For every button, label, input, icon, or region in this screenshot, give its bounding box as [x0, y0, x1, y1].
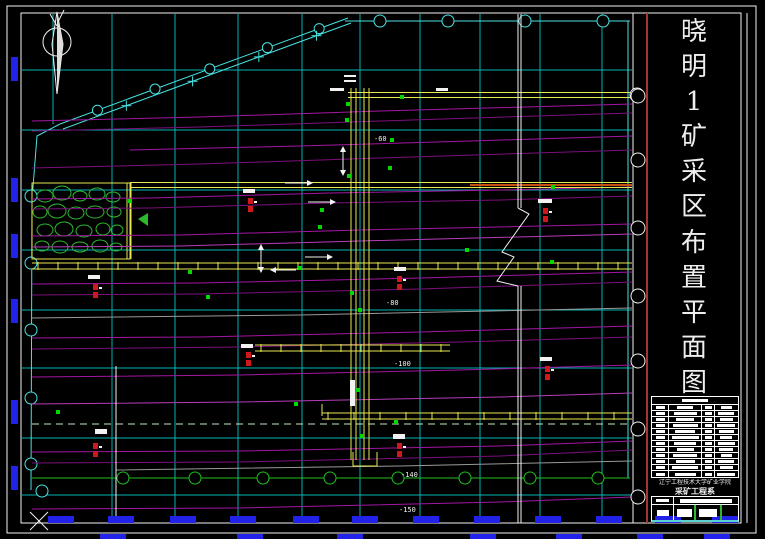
label-blob: [243, 189, 255, 193]
legend-cell: [715, 435, 737, 440]
boundary-marker-circle: [631, 89, 645, 103]
dimension-arrow: [270, 267, 276, 273]
goaf-rubble: [111, 225, 123, 235]
legend-cell: [715, 405, 737, 410]
coordinate-label: [11, 299, 18, 323]
contour-line: [32, 187, 632, 199]
boundary-marker-circle: [631, 354, 645, 368]
coordinate-label: [11, 400, 18, 424]
borehole-marker: [246, 360, 251, 366]
legend-cell: [702, 447, 715, 452]
coordinate-label: [704, 534, 730, 539]
signature-cell: [652, 505, 674, 520]
goaf-outline: [32, 183, 130, 259]
dimension-arrow: [258, 244, 264, 250]
contour-line: [32, 104, 632, 121]
borehole-marker: [545, 374, 550, 380]
coordinate-label: [237, 534, 263, 539]
signature-cell: [722, 505, 738, 520]
survey-circle: [374, 15, 386, 27]
legend-cell: [652, 471, 669, 477]
legend-cell: [652, 453, 669, 458]
label-blob: [540, 357, 552, 361]
survey-dot: [347, 174, 351, 178]
contour-line: [32, 272, 632, 284]
survey-circle: [25, 458, 37, 470]
dimension-arrow: [340, 146, 346, 152]
legend-cell: [715, 411, 737, 416]
coordinate-label: [230, 516, 256, 523]
borehole-marker: [397, 443, 402, 449]
title-char: 平: [681, 297, 707, 330]
title-block-school: 辽宁工程技术大学矿业学院 采矿工程系: [651, 479, 739, 496]
title-char: 图: [681, 367, 707, 400]
borehole-marker: [397, 451, 402, 457]
coordinate-label: [11, 178, 18, 202]
borehole-marker: [246, 352, 251, 358]
legend-cell: [702, 441, 715, 446]
legend-cell: [669, 405, 702, 410]
contour-line: [32, 365, 632, 377]
contour-line: [32, 234, 632, 247]
coordinate-label: [556, 534, 582, 539]
borehole-marker: [93, 284, 98, 290]
label-blob: [436, 88, 448, 91]
legend-cell: [715, 447, 737, 452]
survey-dot: [350, 291, 354, 295]
dimension-arrow: [330, 199, 336, 205]
coordinate-label: [474, 516, 500, 523]
contour-line: [32, 337, 632, 349]
legend-cell: [669, 411, 702, 416]
borehole-marker: [545, 366, 550, 372]
survey-dot: [128, 199, 132, 203]
goaf-rubble: [86, 206, 104, 218]
boundary-marker-circle: [631, 289, 645, 303]
survey-dot: [294, 402, 298, 406]
legend-row: [652, 471, 738, 477]
goaf-arrow: [138, 213, 148, 226]
contour-line: [32, 224, 632, 236]
boundary-marker-circle: [631, 490, 645, 504]
survey-dot: [345, 118, 349, 122]
survey-dot: [551, 185, 555, 189]
survey-circle: [205, 64, 215, 74]
legend-cell: [715, 429, 737, 434]
school-name: 辽宁工程技术大学矿业学院: [651, 479, 739, 487]
legend-cell: [652, 417, 669, 422]
dimension-arrow: [307, 180, 313, 186]
legend-cell: [669, 441, 702, 446]
survey-circle-green: [189, 472, 201, 484]
signature-cell: [674, 505, 696, 520]
signature-cell: [652, 497, 674, 504]
legend-cell: [702, 465, 715, 470]
survey-circle: [150, 84, 160, 94]
legend-cell: [669, 429, 702, 434]
survey-circle-green: [257, 472, 269, 484]
survey-dot: [390, 138, 394, 142]
legend-cell: [702, 435, 715, 440]
survey-dot: [346, 102, 350, 106]
survey-dot: [320, 208, 324, 212]
elevation-label: -100: [394, 360, 411, 368]
borehole-marker: [93, 451, 98, 457]
survey-circle-green: [324, 472, 336, 484]
goaf-rubble: [73, 191, 87, 201]
contour-line: [32, 441, 632, 452]
label-blob: [350, 380, 355, 406]
legend-cell: [715, 459, 737, 464]
legend-cell: [652, 441, 669, 446]
survey-dot: [358, 308, 362, 312]
borehole-marker: [397, 276, 402, 282]
borehole-tick: [403, 446, 406, 448]
legend-cell: [715, 423, 737, 428]
borehole-marker: [93, 292, 98, 298]
signature-cell: [696, 505, 722, 520]
survey-dot: [206, 295, 210, 299]
legend-cell: [669, 471, 702, 477]
borehole-marker: [248, 198, 253, 204]
survey-dot: [56, 410, 60, 414]
goaf-rubble: [96, 223, 110, 235]
borehole-tick: [99, 446, 102, 448]
coordinate-label: [11, 234, 18, 258]
title-char: 置: [681, 262, 707, 295]
borehole-tick: [254, 201, 257, 203]
legend-cell: [652, 459, 669, 464]
legend-cell: [652, 423, 669, 428]
label-blob: [88, 275, 100, 279]
legend-table: [651, 396, 739, 478]
survey-circle-green: [524, 472, 536, 484]
goaf-rubble: [55, 222, 73, 236]
legend-cell: [715, 465, 737, 470]
coordinate-label: [11, 57, 18, 81]
survey-circle: [25, 392, 37, 404]
borehole-tick: [99, 287, 102, 289]
survey-dot: [465, 248, 469, 252]
legend-cell: [652, 405, 669, 410]
title-char: 面: [681, 332, 707, 365]
borehole-marker: [543, 208, 548, 214]
legend-cell: [702, 423, 715, 428]
boundary-marker-circle: [631, 153, 645, 167]
legend-cell: [669, 453, 702, 458]
label-blob: [394, 267, 406, 271]
survey-circle-green: [117, 472, 129, 484]
goaf-rubble: [106, 192, 120, 202]
borehole-marker: [543, 216, 548, 222]
dimension-arrow: [258, 267, 264, 273]
coordinate-label: [170, 516, 196, 523]
title-char: 晓: [681, 16, 707, 49]
survey-circle: [36, 485, 48, 497]
survey-dot: [388, 166, 392, 170]
borehole-marker: [93, 443, 98, 449]
title-char: 采: [681, 156, 707, 189]
contour-line: [32, 393, 632, 404]
survey-dot: [298, 266, 302, 270]
label-blob: [393, 434, 405, 439]
legend-cell: [652, 465, 669, 470]
section-line-break: [497, 208, 529, 286]
survey-circle: [25, 190, 37, 202]
legend-cell: [669, 423, 702, 428]
borehole-marker: [397, 284, 402, 290]
label-blob: [538, 199, 552, 203]
legend-cell: [702, 411, 715, 416]
legend-cell: [652, 411, 669, 416]
survey-circle: [25, 324, 37, 336]
elevation-label: -150: [399, 506, 416, 514]
survey-dot: [318, 225, 322, 229]
coordinate-label: [100, 534, 126, 539]
signature-cell: [674, 497, 738, 504]
contour-line: [32, 150, 632, 168]
legend-cell: [715, 441, 737, 446]
borehole-tick: [403, 279, 406, 281]
dimension-arrow: [340, 170, 346, 176]
elevation-label: -80: [386, 299, 399, 307]
label-blob: [330, 88, 344, 91]
legend-cell: [669, 435, 702, 440]
goaf-rubble: [33, 206, 47, 218]
coordinate-label: [535, 516, 561, 523]
legend-cell: [702, 429, 715, 434]
legend-cell: [715, 417, 737, 422]
boundary-marker-circle: [631, 422, 645, 436]
dimension-arrow: [327, 254, 333, 260]
title-char: 区: [681, 191, 707, 224]
coordinate-label: [108, 516, 134, 523]
coordinate-label: [11, 466, 18, 490]
survey-dot: [550, 260, 554, 264]
legend-cell: [669, 459, 702, 464]
legend-cell: [702, 471, 715, 477]
legend-cell: [702, 453, 715, 458]
borehole-tick: [252, 355, 255, 357]
legend-cell: [669, 465, 702, 470]
borehole-tick: [551, 369, 554, 371]
survey-circle-green: [459, 472, 471, 484]
coordinate-label: [293, 516, 319, 523]
survey-dot: [188, 270, 192, 274]
survey-circle: [92, 105, 102, 115]
survey-dot: [400, 95, 404, 99]
elevation-label: -60: [374, 135, 387, 143]
goaf-rubble: [37, 190, 53, 202]
coordinate-label: [48, 516, 74, 523]
legend-header: [652, 397, 738, 405]
legend-cell: [669, 447, 702, 452]
survey-circle: [262, 43, 272, 53]
legend-cell: [702, 405, 715, 410]
title-char: 明: [681, 51, 707, 84]
contour-line: [32, 497, 632, 509]
legend-cell: [669, 417, 702, 422]
legend-cell: [715, 453, 737, 458]
title-block-signature-table: [651, 496, 739, 522]
survey-circle: [442, 15, 454, 27]
goaf-rubble: [53, 186, 71, 200]
contour-line: [32, 326, 632, 338]
coordinate-label: [337, 534, 363, 539]
legend-cell: [652, 447, 669, 452]
cad-sheet: -60-80-100-140-150 晓明1矿采区布置平面图 辽宁工程技术大学矿…: [0, 0, 765, 539]
goaf-rubble: [37, 224, 53, 236]
legend-cell: [702, 417, 715, 422]
legend-title-blob: [682, 399, 708, 402]
survey-dot: [394, 420, 398, 424]
survey-dot: [356, 388, 360, 392]
drawing-title-vertical: 晓明1矿采区布置平面图: [650, 16, 738, 400]
legend-cell: [652, 435, 669, 440]
north-arrow-icon: [58, 10, 64, 22]
legend-cell: [702, 459, 715, 464]
department-name: 采矿工程系: [651, 487, 739, 496]
survey-dot: [360, 434, 364, 438]
coordinate-label: [470, 534, 496, 539]
coordinate-label: [352, 516, 378, 523]
label-blob: [241, 344, 253, 348]
title-char: 布: [681, 227, 707, 260]
borehole-tick: [549, 211, 552, 213]
title-char: 1: [686, 86, 703, 119]
title-char: 矿: [681, 121, 707, 154]
survey-circle-green: [592, 472, 604, 484]
survey-circle: [314, 24, 324, 34]
contour-line: [32, 113, 632, 131]
coordinate-label: [413, 516, 439, 523]
diagonal-boundary-1: [60, 18, 348, 124]
coordinate-label: [596, 516, 622, 523]
coordinate-label: [637, 534, 663, 539]
survey-circle: [597, 15, 609, 27]
borehole-marker: [248, 206, 253, 212]
legend-cell: [715, 471, 737, 477]
boundary-marker-circle: [631, 221, 645, 235]
legend-cell: [652, 429, 669, 434]
left-boundary-line: [31, 124, 60, 490]
label-blob: [95, 429, 107, 434]
goaf-rubble: [48, 204, 66, 218]
elevation-label: -140: [401, 471, 418, 479]
